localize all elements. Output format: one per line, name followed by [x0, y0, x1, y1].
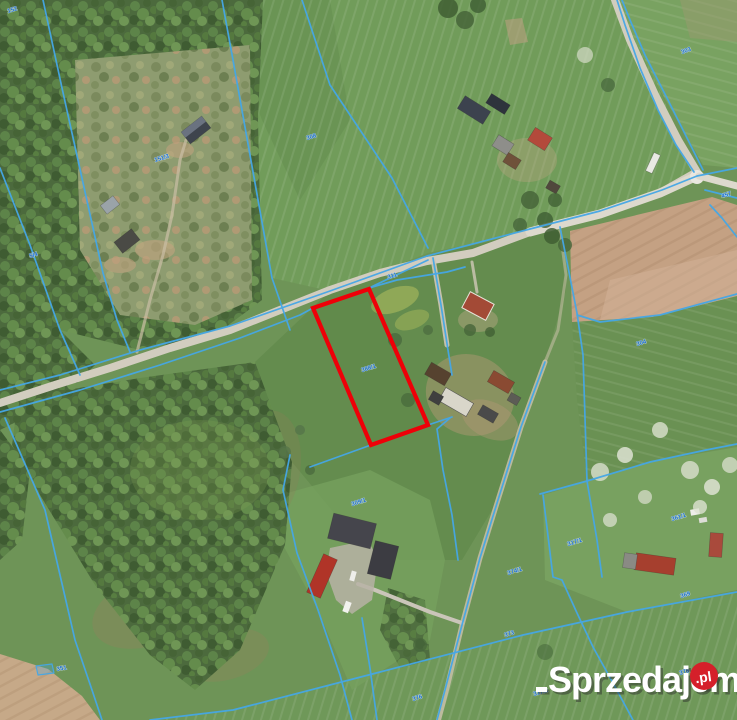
building	[709, 533, 724, 558]
tld-text: .pl	[694, 668, 712, 686]
logo-underscore	[536, 687, 547, 692]
building	[623, 553, 638, 570]
small-parcel-outline	[36, 664, 54, 675]
watermark-logo: Sprzedajemy Sprzedajemy .pl	[536, 659, 737, 703]
aerial-map-screenshot: 152 151/3 5/4 308 303 311 388/1 309/1 37…	[0, 0, 737, 720]
aerial-map: 152 151/3 5/4 308 303 311 388/1 309/1 37…	[0, 0, 737, 720]
